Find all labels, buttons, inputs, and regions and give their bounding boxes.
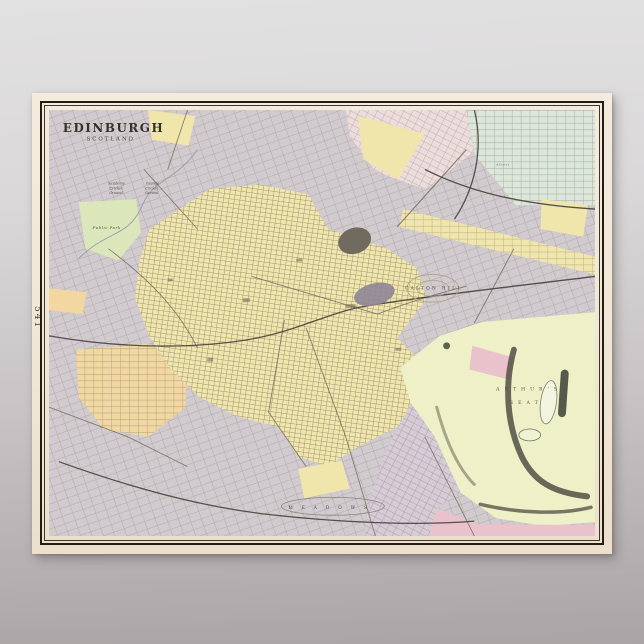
label-academy-cricket-3: Ground	[109, 191, 123, 195]
label-grange-cricket-3: Ground	[145, 191, 159, 195]
label-meadows: MEADOWS	[288, 506, 376, 511]
label-public-park: Public Park	[92, 225, 121, 230]
region-orange-west	[49, 288, 87, 314]
label-academy-cricket-1: Academy	[107, 181, 125, 185]
poster-frame-outer: EDINBURGH SCOTLAND Academy Cricket Groun…	[40, 101, 604, 545]
map-subtitle: SCOTLAND	[87, 137, 135, 143]
label-academy-cricket-2: Cricket	[109, 186, 123, 190]
st-margarets-loch	[443, 342, 450, 349]
map-area: EDINBURGH SCOTLAND Academy Cricket Groun…	[49, 110, 595, 536]
small-loch-contour	[519, 429, 541, 441]
label-grange-cricket-1: Grange	[146, 181, 159, 185]
label-calton-hill: CALTON HILL	[405, 285, 463, 290]
label-arthurs-seat-1: ARTHUR'S	[495, 386, 562, 392]
map-poster: 541	[32, 93, 612, 554]
poster-frame-inner: EDINBURGH SCOTLAND Academy Cricket Groun…	[44, 105, 600, 541]
label-arthurs-seat-2: SEAT	[510, 400, 543, 406]
map-title: EDINBURGH	[63, 121, 164, 135]
map-canvas: EDINBURGH SCOTLAND Academy Cricket Groun…	[49, 110, 595, 536]
photo-background: 541	[0, 0, 644, 644]
label-albert-street: Albert	[495, 162, 510, 166]
label-grange-cricket-2: Cricket	[145, 186, 159, 190]
